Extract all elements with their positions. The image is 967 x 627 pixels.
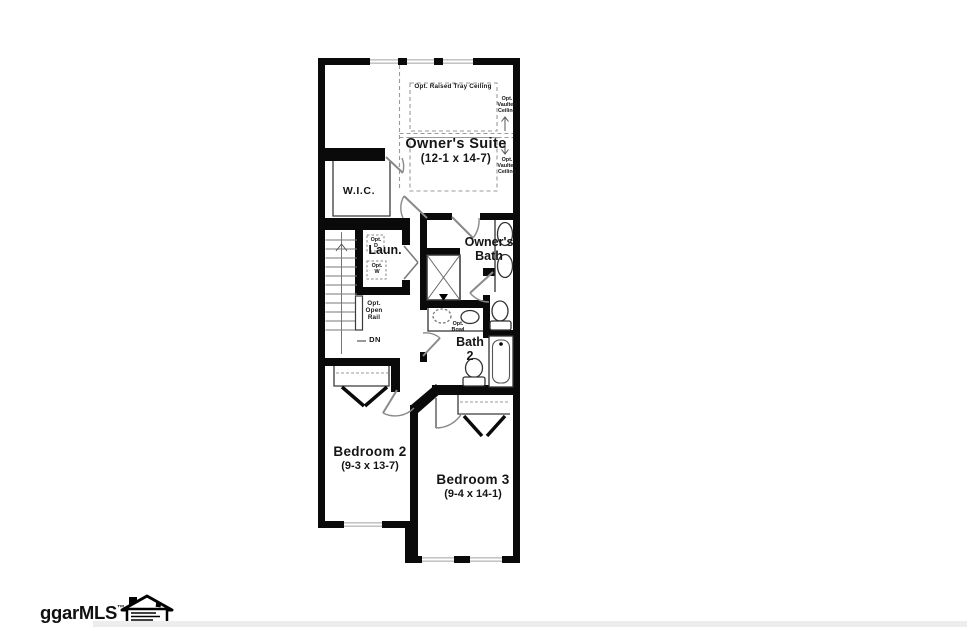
bath2-label: Bath 2: [456, 336, 484, 364]
owners-bath-toilet: [490, 301, 511, 330]
down-label: DN: [369, 336, 381, 344]
bedroom3-closet: [458, 395, 510, 436]
staircase: [326, 232, 358, 354]
stair-railing: [356, 296, 367, 341]
bedroom2-dims: (9-3 x 13-7): [341, 461, 398, 473]
footer-strip: [93, 621, 967, 627]
floorplan-image: Opt. Raised Tray Ceiling Opt. Vaulted Ce…: [0, 0, 967, 627]
owners-suite-label: Owner's Suite: [405, 137, 506, 153]
shower: [427, 255, 460, 301]
wic-label: W.I.C.: [343, 186, 375, 197]
bedroom2-closet: [334, 366, 389, 406]
floorplan-drawing: [0, 0, 967, 627]
mls-brand-text: ggarMLS™: [40, 603, 125, 623]
mls-brand-name: ggarMLS: [40, 602, 117, 623]
bedroom3-dims: (9-4 x 14-1): [444, 489, 501, 501]
vaulted-ceiling-lower-label: Opt. Vaulted Ceiling: [497, 157, 516, 175]
bedroom2-label: Bedroom 2: [333, 445, 406, 460]
owners-suite-dims: (12-1 x 14-7): [421, 153, 491, 165]
laundry-label: Laun.: [368, 244, 401, 258]
bathtub: [489, 336, 513, 387]
open-rail-label: Opt. Open Rail: [366, 301, 383, 321]
tray-ceiling-label: Opt. Raised Tray Ceiling: [414, 84, 491, 91]
bedroom3-label: Bedroom 3: [436, 473, 509, 488]
opt-washer-label: Opt. W: [372, 263, 383, 275]
opt-bowl-label: Opt. Bowl: [452, 321, 465, 333]
trademark-symbol: ™: [117, 603, 125, 612]
vaulted-ceiling-upper-label: Opt. Vaulted Ceiling: [497, 96, 516, 114]
laundry-bifold-doors: [404, 246, 418, 279]
owners-bath-label: Owner's Bath: [465, 236, 514, 264]
